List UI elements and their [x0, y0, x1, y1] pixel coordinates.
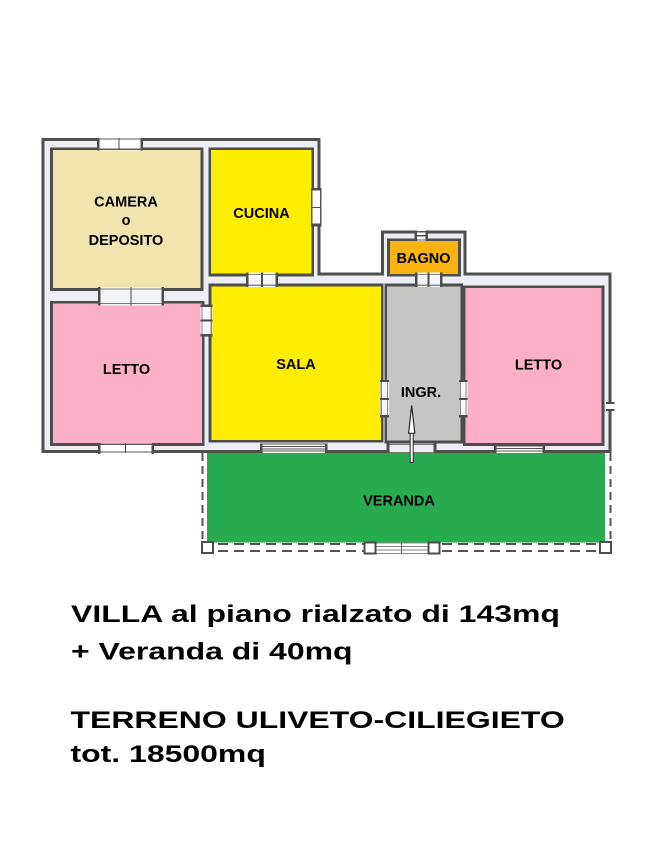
- svg-text:BAGNO: BAGNO: [397, 251, 451, 267]
- svg-text:LETTO: LETTO: [103, 362, 150, 378]
- svg-text:CAMERA: CAMERA: [94, 195, 158, 211]
- svg-text:SALA: SALA: [276, 357, 316, 373]
- svg-text:CUCINA: CUCINA: [233, 206, 290, 222]
- svg-text:tot. 18500mq: tot. 18500mq: [71, 740, 266, 768]
- svg-text:DEPOSITO: DEPOSITO: [89, 233, 164, 249]
- svg-text:LETTO: LETTO: [515, 358, 562, 374]
- svg-text:o: o: [122, 213, 131, 229]
- svg-text:INGR.: INGR.: [401, 385, 441, 401]
- svg-text:+ Veranda di 40mq: + Veranda di 40mq: [71, 638, 353, 666]
- svg-text:VILLA al piano rialzato di 143: VILLA al piano rialzato di 143mq: [71, 600, 560, 628]
- svg-text:TERRENO ULIVETO-CILIEGIETO: TERRENO ULIVETO-CILIEGIETO: [71, 706, 565, 734]
- svg-text:VERANDA: VERANDA: [363, 494, 435, 510]
